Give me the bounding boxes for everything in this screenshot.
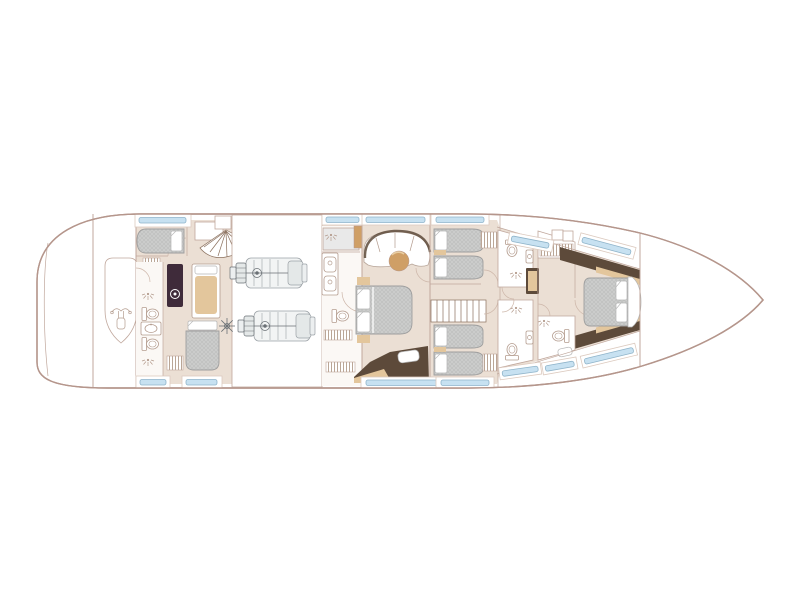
bathroom-aft [498, 300, 533, 368]
washing-machine [167, 264, 183, 307]
window-strip [140, 380, 166, 386]
master-bed [356, 277, 412, 343]
wardrobe-rail [481, 232, 497, 248]
tender-outline [105, 258, 137, 343]
engine-room-cabinet [215, 216, 231, 229]
vip-bed [584, 277, 641, 327]
nightstand [357, 277, 370, 285]
sink-icon [526, 250, 533, 263]
window-strip [366, 380, 437, 386]
yacht-deck-plan-page [0, 0, 800, 600]
wardrobe-cubby [552, 230, 563, 240]
guest-staircase [431, 300, 486, 322]
window-strip [441, 380, 489, 386]
nightstand [434, 250, 446, 255]
wardrobe-rail [324, 330, 352, 340]
wardrobe-cubby [563, 231, 573, 241]
bath-cabinet [354, 226, 362, 248]
wardrobe-rail [483, 354, 497, 371]
crew-double-bed [186, 321, 219, 370]
foyer-cabinet [526, 268, 539, 294]
sink-icon [141, 322, 161, 335]
window-strip [139, 218, 186, 224]
nightstand [357, 335, 370, 343]
window-strip [366, 217, 425, 223]
master-shower [323, 228, 359, 250]
crew-bed [137, 229, 184, 253]
wardrobe-rail [326, 362, 355, 372]
window-strip [186, 380, 217, 386]
window-strip [326, 217, 359, 223]
crew-mess-berth [192, 264, 220, 318]
crew-rug-rail [167, 356, 183, 370]
deck-plan-svg [0, 0, 800, 600]
window-strip [436, 217, 484, 223]
twin-sinks [322, 253, 338, 295]
sink-icon [526, 331, 533, 344]
nightstand [434, 347, 446, 352]
shaft-coupling-icon [219, 318, 235, 334]
